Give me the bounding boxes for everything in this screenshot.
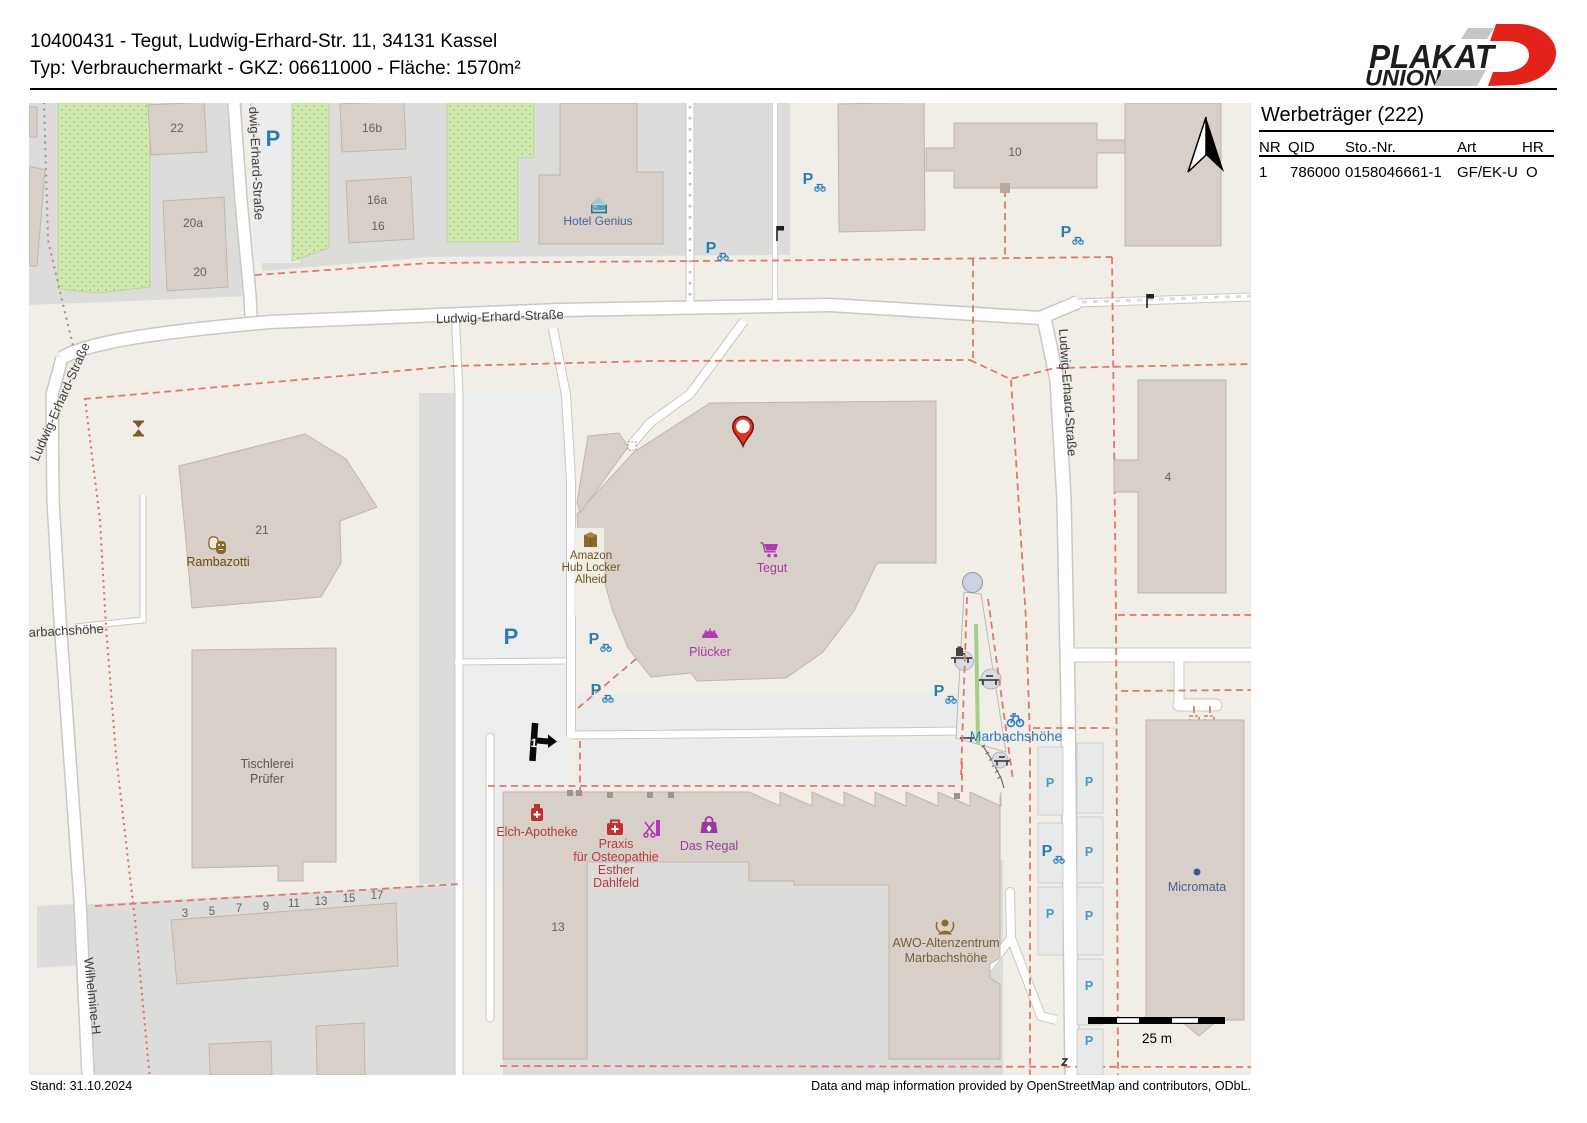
svg-text:P: P (1046, 776, 1054, 790)
svg-text:P: P (1085, 1034, 1093, 1048)
svg-text:P: P (1085, 845, 1093, 859)
svg-text:5: 5 (209, 906, 215, 918)
svg-text:P: P (504, 624, 519, 649)
svg-text:UNION: UNION (1365, 66, 1442, 91)
svg-text:P: P (706, 240, 717, 257)
svg-text:P: P (591, 682, 602, 699)
svg-text:Dahlfeld: Dahlfeld (593, 876, 639, 890)
svg-text:Tegut: Tegut (757, 561, 788, 575)
svg-text:Marbachshöhe: Marbachshöhe (905, 951, 988, 965)
svg-text:17: 17 (371, 890, 384, 902)
svg-text:15: 15 (343, 893, 356, 905)
svg-text:Elch-Apotheke: Elch-Apotheke (496, 825, 577, 839)
svg-text:P: P (1046, 907, 1054, 921)
svg-text:P: P (589, 631, 600, 648)
svg-text:Tischlerei: Tischlerei (240, 757, 293, 771)
svg-text:P: P (266, 126, 281, 151)
svg-text:Micromata: Micromata (1168, 880, 1226, 894)
svg-text:P: P (1085, 775, 1093, 789)
svg-text:3: 3 (182, 908, 188, 920)
svg-text:Praxis: Praxis (599, 837, 634, 851)
svg-text:P: P (1042, 843, 1053, 860)
svg-text:AWO-Altenzentrum: AWO-Altenzentrum (892, 936, 999, 950)
svg-text:11: 11 (288, 898, 300, 910)
svg-text:13: 13 (315, 896, 328, 908)
svg-text:7: 7 (236, 903, 242, 915)
svg-text:P: P (934, 683, 945, 700)
svg-text:P: P (1085, 909, 1093, 923)
svg-text:25 m: 25 m (1142, 1031, 1172, 1046)
svg-text:10: 10 (1008, 145, 1022, 159)
svg-text:1: 1 (530, 736, 538, 750)
svg-text:Hub Locker: Hub Locker (562, 562, 621, 574)
svg-text:Alheid: Alheid (575, 574, 607, 586)
svg-text:9: 9 (263, 901, 269, 913)
svg-text:für Osteopathie: für Osteopathie (573, 850, 659, 864)
svg-text:16a: 16a (367, 193, 387, 207)
svg-text:20a: 20a (183, 216, 203, 230)
svg-text:13: 13 (551, 920, 565, 934)
svg-text:Plücker: Plücker (689, 645, 731, 659)
svg-text:Amazon: Amazon (570, 550, 612, 562)
svg-text:Rambazotti: Rambazotti (186, 555, 249, 569)
svg-text:16b: 16b (362, 121, 382, 135)
svg-text:P: P (803, 171, 814, 188)
svg-text:21: 21 (255, 523, 269, 537)
svg-text:Prüfer: Prüfer (250, 772, 284, 786)
svg-text:20: 20 (193, 265, 207, 279)
svg-text:4: 4 (1165, 470, 1172, 484)
svg-text:Esther: Esther (598, 863, 634, 877)
svg-text:P: P (1085, 979, 1093, 993)
svg-text:P: P (1061, 224, 1072, 241)
svg-text:16: 16 (371, 219, 385, 233)
svg-text:22: 22 (170, 121, 184, 135)
svg-text:Das Regal: Das Regal (680, 839, 738, 853)
svg-text:Marbachshöhe: Marbachshöhe (970, 728, 1063, 744)
svg-text:Hotel Genius: Hotel Genius (563, 214, 632, 228)
